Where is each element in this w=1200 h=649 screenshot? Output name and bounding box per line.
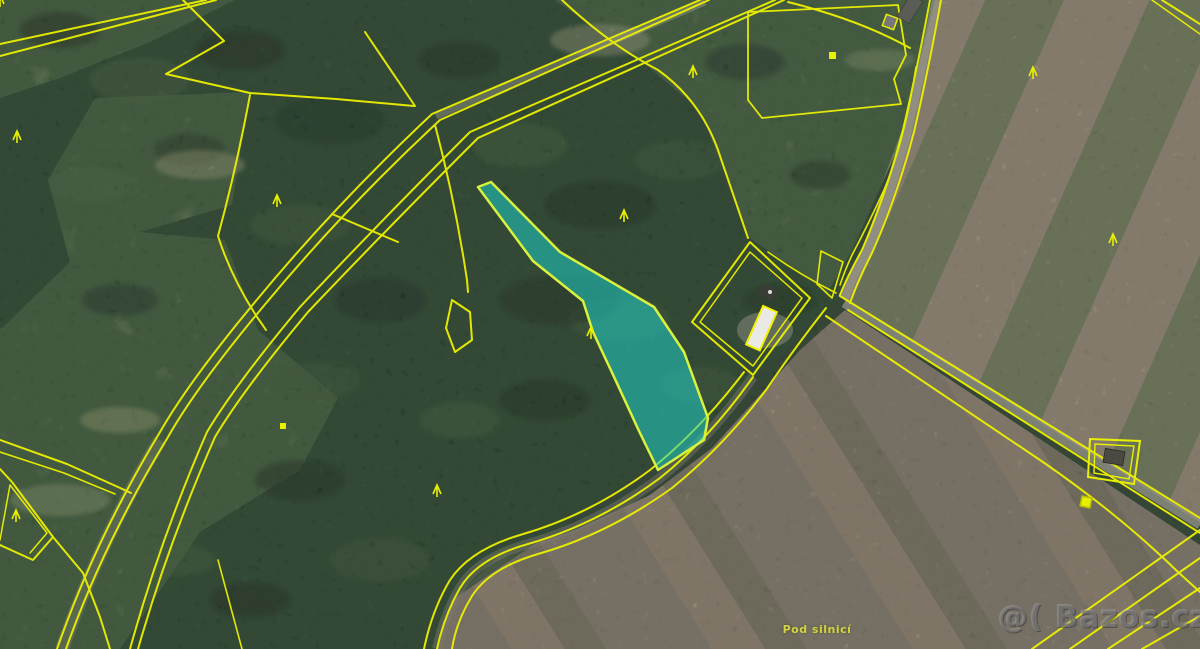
square-marker-icon [280,423,286,429]
aerial-map-image[interactable]: Pod silnicí @( Bazos.cz [0,0,1200,649]
map-canvas [0,0,1200,649]
square-marker-icon [829,52,836,59]
bazos-watermark: @( Bazos.cz [998,600,1200,635]
chapel-marker-icon [1080,496,1092,508]
roadside-building [1103,448,1125,465]
building-detail [768,290,772,294]
place-name-label: Pod silnicí [752,623,882,636]
